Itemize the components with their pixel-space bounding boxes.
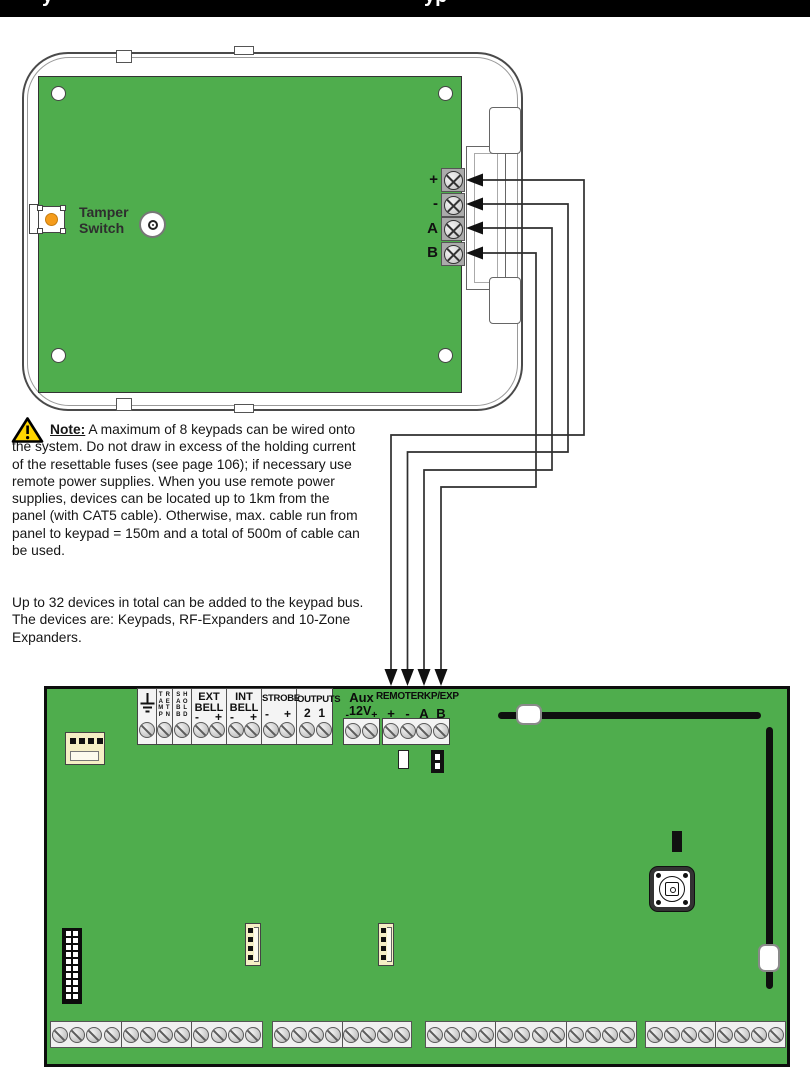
terminal-label-tamp: TAMP: [158, 692, 164, 718]
corner-dot: [683, 900, 688, 905]
terminal-screw: [279, 722, 295, 738]
panel-tamper-face: [654, 871, 690, 907]
terminal-screw: [263, 722, 279, 738]
connector-pin: [73, 994, 78, 999]
zone-terminal-strip-2: [272, 1021, 412, 1048]
terminal-screw: [308, 1027, 324, 1043]
page-title-bar: y yp: [0, 0, 810, 17]
screw-row: [273, 1027, 342, 1043]
terminal-screw: [325, 1027, 341, 1043]
terminal-screw: [751, 1027, 767, 1043]
terminal-screw: [717, 1027, 733, 1043]
connector-bracket: [387, 927, 392, 962]
terminal-screw: [427, 1027, 443, 1043]
vertical-letter: N: [166, 712, 170, 719]
keypad-terminal-label-b: B: [422, 244, 438, 261]
strobe-neg: -: [265, 707, 269, 721]
vertical-letter: D: [183, 712, 187, 719]
terminal-screw: [400, 723, 416, 739]
case-terminal-channel-inner: [474, 153, 498, 283]
keypad-screw: [444, 220, 463, 239]
terminal-screw: [140, 1027, 156, 1043]
pcb-centre-screw: [139, 211, 166, 238]
keypad-terminal-a: [441, 217, 465, 241]
terminal-screw: [360, 1027, 376, 1043]
connector-pin: [73, 931, 78, 936]
terminal-screw: [461, 1027, 477, 1043]
connector-pin: [73, 938, 78, 943]
terminal-screw: [123, 1027, 139, 1043]
screw-row: [646, 1027, 715, 1043]
jumper-black: [431, 750, 444, 773]
case-clip-top: [489, 107, 521, 154]
screw-row: [567, 1027, 636, 1043]
pcb-mounting-hole: [51, 348, 66, 363]
vertical-letter: T: [159, 692, 163, 699]
screw-row: [138, 722, 156, 738]
outputs-label: OUTPUTS: [297, 694, 334, 705]
keypad-terminal-b: [441, 242, 465, 266]
connector-pin: [66, 938, 71, 943]
terminal-screw: [664, 1027, 680, 1043]
terminal-screw: [433, 723, 449, 739]
terminal-screw: [228, 1027, 244, 1043]
terminal-section-int-bell: INT BELL - +: [227, 689, 262, 744]
screw-row: [227, 722, 261, 738]
terminal-section-tamp-retn: TAMP RETN: [157, 689, 173, 744]
connector-pin: [248, 937, 253, 942]
terminal-label-hold: HOLD: [182, 692, 188, 718]
connector-pin: [66, 952, 71, 957]
zone-terminal-group: [273, 1022, 343, 1047]
component-block: [672, 831, 682, 852]
keypad-terminal-label-a: A: [422, 220, 438, 237]
terminal-screw: [734, 1027, 750, 1043]
keypad-screw: [444, 196, 463, 215]
connector-pin: [97, 738, 103, 744]
terminal-screw: [602, 1027, 618, 1043]
note-text-1: A maximum of 8 keypads can be wired onto…: [12, 422, 360, 558]
terminal-screw: [497, 1027, 513, 1043]
zone-terminal-group: [51, 1022, 122, 1047]
case-tab-bottom: [116, 398, 132, 411]
connector-pin: [66, 959, 71, 964]
aux-voltage-label: -12V+: [341, 704, 382, 718]
strobe-pos: +: [284, 707, 291, 721]
terminal-label-sabb: SABB: [175, 692, 181, 718]
antenna-clip-vertical: [758, 944, 780, 972]
connector-socket: [70, 751, 99, 761]
terminal-screw: [291, 1027, 307, 1043]
screw-row: [343, 1027, 412, 1043]
tamper-switch-label: Tamper Switch: [79, 204, 129, 236]
tamper-switch-tab: [60, 228, 66, 234]
terminal-screw: [228, 722, 244, 738]
vertical-letter: E: [166, 699, 170, 706]
terminal-screw: [698, 1027, 714, 1043]
vertical-letter: B: [176, 712, 180, 719]
terminal-screw: [362, 723, 378, 739]
zone-terminal-group: [122, 1022, 193, 1047]
title-fragment-left: y: [42, 0, 53, 8]
tamper-switch-tab: [37, 205, 43, 211]
connector-pin: [66, 994, 71, 999]
case-notch-bottom: [234, 404, 254, 413]
vertical-letter: S: [176, 692, 180, 699]
connector-pin: [381, 955, 386, 960]
terminal-screw: [104, 1027, 120, 1043]
keypad-terminal-plus: [441, 168, 465, 192]
terminal-screw: [316, 722, 332, 738]
zone-terminal-strip-1: [50, 1021, 263, 1048]
connector-pin: [66, 945, 71, 950]
connector-pin: [248, 946, 253, 951]
zone-terminal-group: [192, 1022, 262, 1047]
bus-labels: REMOTE RKP/EXP: [376, 691, 456, 702]
screw-row: [716, 1027, 785, 1043]
terminal-screw: [647, 1027, 663, 1043]
expansion-header: [62, 928, 82, 1004]
connector-pin: [248, 928, 253, 933]
warning-icon: [11, 416, 45, 444]
terminal-screw: [568, 1027, 584, 1043]
vertical-letter: B: [176, 705, 180, 712]
connector-pin: [79, 738, 85, 744]
screw-row: [383, 723, 449, 739]
terminal-screw: [768, 1027, 784, 1043]
zone-terminal-group: [426, 1022, 496, 1047]
aux-voltage: 12V: [349, 704, 371, 718]
connector-pin: [248, 955, 253, 960]
terminal-section-ext-bell: EXT BELL - +: [192, 689, 227, 744]
keypad-bus-connector-2: [378, 923, 394, 966]
connector-pin: [66, 931, 71, 936]
terminal-screw: [211, 1027, 227, 1043]
screw-dot: [152, 224, 154, 226]
panel-tamper-switch: [649, 866, 695, 912]
remote-rkp-terminal-box: [382, 718, 450, 745]
terminal-screw: [619, 1027, 635, 1043]
corner-dot: [656, 900, 661, 905]
terminal-screw: [343, 1027, 359, 1043]
terminal-screw: [416, 723, 432, 739]
case-terminal-channel: [466, 146, 506, 290]
vertical-letter: A: [176, 699, 180, 706]
note-paragraph-2: Up to 32 devices in total can be added t…: [12, 594, 364, 646]
connector-pin: [66, 973, 71, 978]
zone-terminal-strip-3: [425, 1021, 637, 1048]
terminal-screw: [345, 723, 361, 739]
vertical-letter: H: [183, 692, 187, 699]
screw-row: [192, 1027, 262, 1043]
terminal-screw: [193, 722, 209, 738]
screw-row: [297, 722, 334, 738]
terminal-screw: [478, 1027, 494, 1043]
vertical-letter: P: [159, 712, 163, 719]
vertical-letter: R: [166, 692, 170, 699]
terminal-screw: [274, 1027, 290, 1043]
zone-terminal-group: [716, 1022, 785, 1047]
terminal-section-sabb-hold: SABB HOLD: [173, 689, 193, 744]
terminal-screw: [394, 1027, 410, 1043]
connector-bracket: [254, 927, 259, 962]
aux-label: Aux: [343, 690, 380, 705]
outputs-1: 1: [318, 706, 325, 720]
terminal-screw: [299, 722, 315, 738]
terminal-screw: [157, 722, 172, 738]
connector-pin: [73, 966, 78, 971]
aux-terminal-box: [343, 718, 380, 745]
tamper-label-line1: Tamper: [79, 204, 129, 220]
vertical-labels: TAMP RETN: [157, 692, 172, 718]
vertical-letter: L: [183, 705, 187, 712]
connector-pin: [73, 959, 78, 964]
rkp-exp-label: RKP/EXP: [417, 691, 459, 702]
connector-pin: [73, 945, 78, 950]
terminal-screw: [383, 723, 399, 739]
terminal-label-retn: RETN: [165, 692, 171, 718]
connector-pin: [381, 946, 386, 951]
keypad-bus-connector-1: [245, 923, 261, 966]
connector-pin: [73, 987, 78, 992]
tamper-plunger: [665, 882, 679, 896]
connector-pin: [73, 980, 78, 985]
terminal-screw: [209, 722, 225, 738]
connector-pin: [435, 754, 440, 760]
terminal-screw: [139, 722, 155, 738]
terminal-screw: [377, 1027, 393, 1043]
terminal-screw: [69, 1027, 85, 1043]
screw-row: [173, 722, 192, 738]
programming-connector: [65, 732, 105, 765]
corner-dot: [683, 873, 688, 878]
vertical-letter: M: [158, 705, 163, 712]
screw-row: [122, 1027, 192, 1043]
note-paragraph-1: Note: A maximum of 8 keypads can be wire…: [12, 421, 364, 559]
pcb-mounting-hole: [438, 86, 453, 101]
terminal-screw: [444, 1027, 460, 1043]
zone-terminal-group: [567, 1022, 636, 1047]
keypad-terminal-minus: [441, 193, 465, 217]
connector-pin: [381, 928, 386, 933]
screw-row: [496, 1027, 565, 1043]
case-clip-bottom: [489, 277, 521, 324]
connector-pins: [381, 928, 386, 960]
outputs-2: 2: [304, 706, 311, 720]
connector-pin: [66, 966, 71, 971]
screw-row: [192, 722, 226, 738]
terminal-section-strobe: STROBE - +: [262, 689, 297, 744]
vertical-letter: O: [183, 699, 188, 706]
case-notch-top: [234, 46, 254, 55]
screw-row: [344, 723, 379, 739]
tamper-switch-tab: [60, 205, 66, 211]
corner-dot: [656, 873, 661, 878]
pcb-mounting-hole: [51, 86, 66, 101]
panel-terminal-strip-top: TAMP RETN SABB HOLD EXT BELL - + INT BEL…: [137, 688, 333, 745]
connector-pin: [66, 987, 71, 992]
terminal-screw: [174, 722, 190, 738]
keypad-screw: [444, 171, 463, 190]
terminal-screw: [532, 1027, 548, 1043]
pcb-mounting-hole: [438, 348, 453, 363]
case-tab-top: [116, 50, 132, 63]
connector-pin: [381, 937, 386, 942]
antenna-clip-horizontal: [516, 704, 542, 725]
screw-row: [51, 1027, 121, 1043]
note-label: Note:: [50, 422, 85, 437]
screw-row: [262, 722, 296, 738]
screw-row: [426, 1027, 495, 1043]
keypad-terminal-label-plus: +: [422, 171, 438, 188]
vertical-letter: T: [166, 705, 170, 712]
connector-pin: [66, 980, 71, 985]
tamper-plunger-dot: [670, 887, 676, 893]
terminal-screw: [174, 1027, 190, 1043]
tamper-switch: [38, 206, 65, 233]
vertical-letter: A: [159, 699, 163, 706]
terminal-screw: [244, 722, 260, 738]
connector-pins: [248, 928, 253, 960]
manual-page: y yp Tamper Switch + - A B Note:: [0, 0, 810, 1085]
tamper-switch-tab: [37, 228, 43, 234]
screw-row: [157, 722, 172, 738]
tamper-switch-button: [45, 213, 58, 226]
connector-pin: [70, 738, 76, 744]
terminal-screw: [193, 1027, 209, 1043]
strobe-label: STROBE: [262, 693, 296, 704]
connector-pins: [70, 738, 103, 744]
keypad-screw: [444, 245, 463, 264]
earth-icon: [140, 692, 155, 716]
terminal-screw: [585, 1027, 601, 1043]
terminal-screw: [157, 1027, 173, 1043]
connector-pin: [435, 763, 440, 769]
terminal-screw: [681, 1027, 697, 1043]
keypad-terminal-label-minus: -: [422, 195, 438, 212]
terminal-screw: [549, 1027, 565, 1043]
terminal-screw: [52, 1027, 68, 1043]
tamper-label-line2: Switch: [79, 220, 129, 236]
connector-pin: [88, 738, 94, 744]
connector-pin: [73, 973, 78, 978]
zone-terminal-strip-4: [645, 1021, 786, 1048]
zone-terminal-group: [646, 1022, 716, 1047]
connector-pin: [73, 952, 78, 957]
remote-label: REMOTE: [376, 691, 417, 702]
zone-terminal-group: [343, 1022, 412, 1047]
terminal-section-outputs: OUTPUTS 2 1: [297, 689, 334, 744]
terminal-section-earth: [138, 689, 157, 744]
zone-terminal-group: [496, 1022, 566, 1047]
vertical-labels: SABB HOLD: [173, 692, 192, 718]
jumper-white: [398, 750, 409, 769]
title-fragment-right: yp: [424, 0, 447, 8]
terminal-screw: [86, 1027, 102, 1043]
terminal-screw: [514, 1027, 530, 1043]
terminal-screw: [245, 1027, 261, 1043]
